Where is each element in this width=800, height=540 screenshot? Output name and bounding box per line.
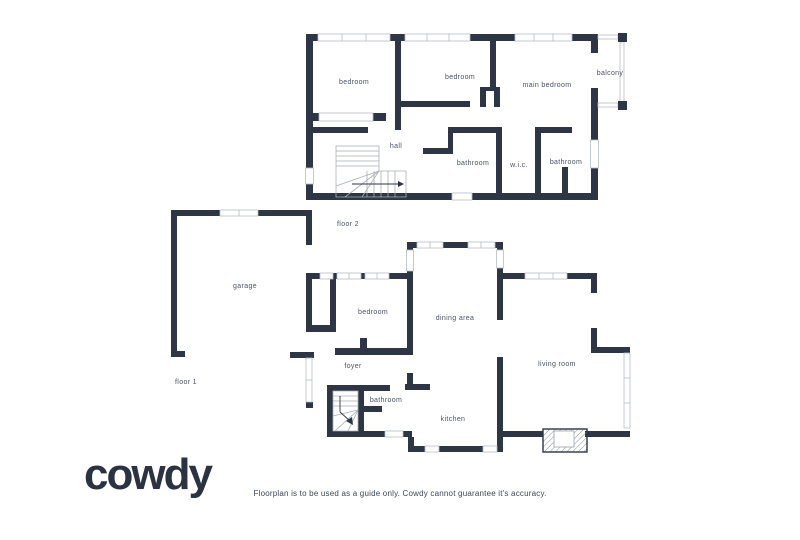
room-label-hall: hall bbox=[390, 143, 402, 150]
room-label-wic: w.i.c. bbox=[509, 162, 528, 169]
floor1-plan: garage bedroom dining area foyer bathroo… bbox=[171, 210, 630, 452]
room-label-dining-area: dining area bbox=[436, 315, 475, 322]
floor1-windows bbox=[220, 210, 630, 452]
wardrobe bbox=[319, 113, 373, 121]
room-label-bedroom-left: bedroom bbox=[339, 79, 369, 86]
room-label-bedroom-f1: bedroom bbox=[358, 309, 388, 316]
room-label-kitchen: kitchen bbox=[441, 416, 466, 423]
disclaimer-text: Floorplan is to be used as a guide only.… bbox=[0, 489, 800, 498]
fireplace bbox=[543, 429, 587, 452]
room-label-living-room: living room bbox=[538, 361, 576, 368]
floor1-label: floor 1 bbox=[175, 379, 197, 386]
room-label-bedroom-middle: bedroom bbox=[445, 74, 475, 81]
room-label-garage: garage bbox=[233, 283, 257, 290]
room-label-foyer: foyer bbox=[344, 363, 362, 370]
floor1-stairs bbox=[333, 391, 358, 431]
floor2-label: floor 2 bbox=[337, 221, 359, 228]
room-label-main-bedroom: main bedroom bbox=[523, 82, 572, 89]
floorplan-page: bedroom bedroom main bedroom balcony hal… bbox=[0, 0, 800, 540]
room-label-balcony: balcony bbox=[597, 70, 624, 77]
room-label-bathroom-f1: bathroom bbox=[370, 397, 402, 404]
floor2-plan: bedroom bedroom main bedroom balcony hal… bbox=[306, 33, 628, 228]
room-label-bathroom-right: bathroom bbox=[550, 159, 582, 166]
room-label-bathroom-center: bathroom bbox=[457, 160, 489, 167]
floor1-walls bbox=[171, 210, 630, 452]
floor2-stairs bbox=[336, 146, 406, 197]
